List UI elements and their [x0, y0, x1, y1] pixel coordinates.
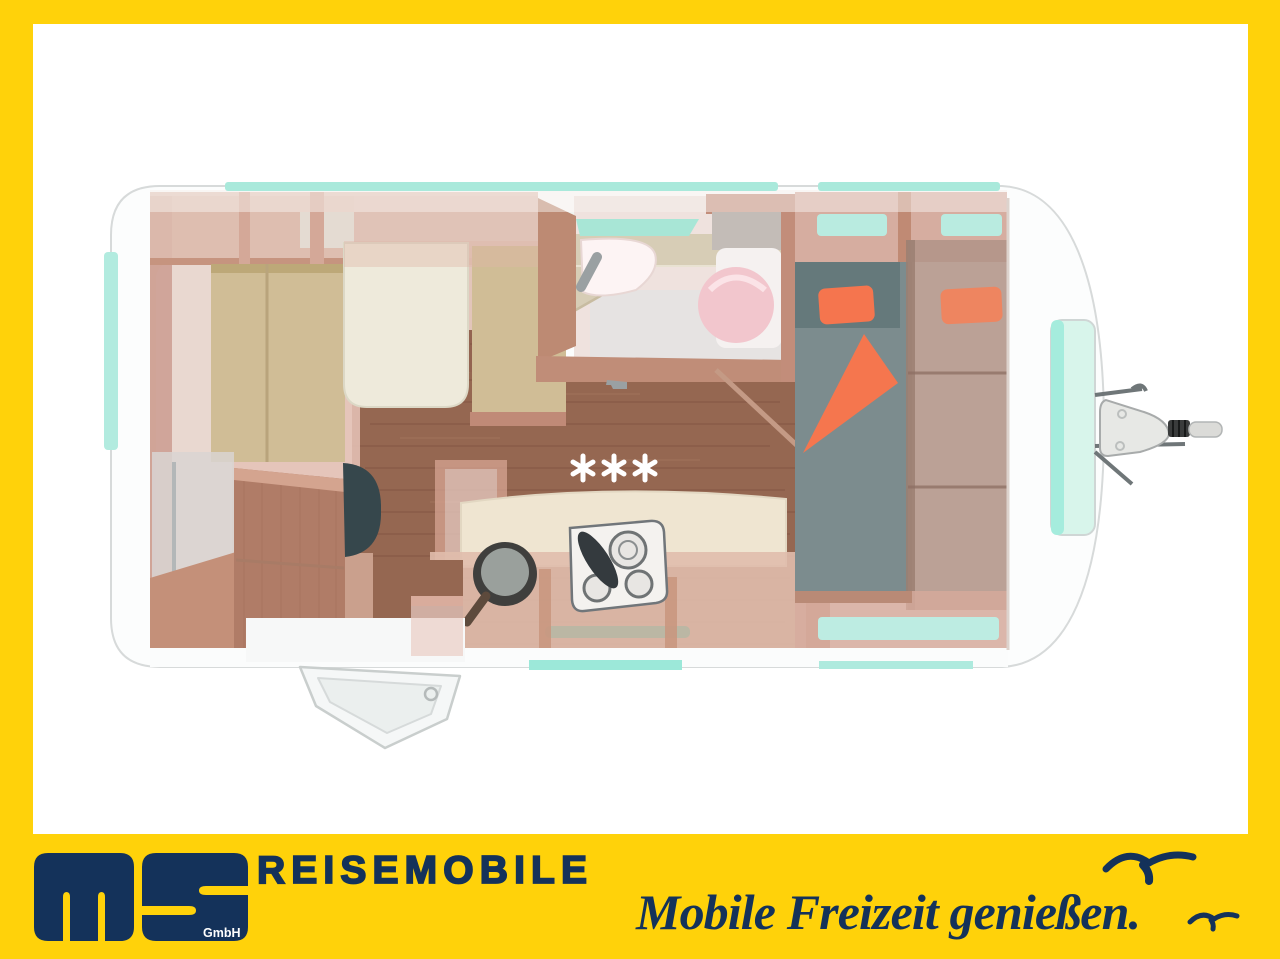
svg-text:REISEMOBILE: REISEMOBILE	[257, 849, 587, 892]
svg-text:Mobile Freizeit genießen.: Mobile Freizeit genießen.	[635, 884, 1141, 940]
svg-text:GmbH: GmbH	[203, 926, 241, 940]
